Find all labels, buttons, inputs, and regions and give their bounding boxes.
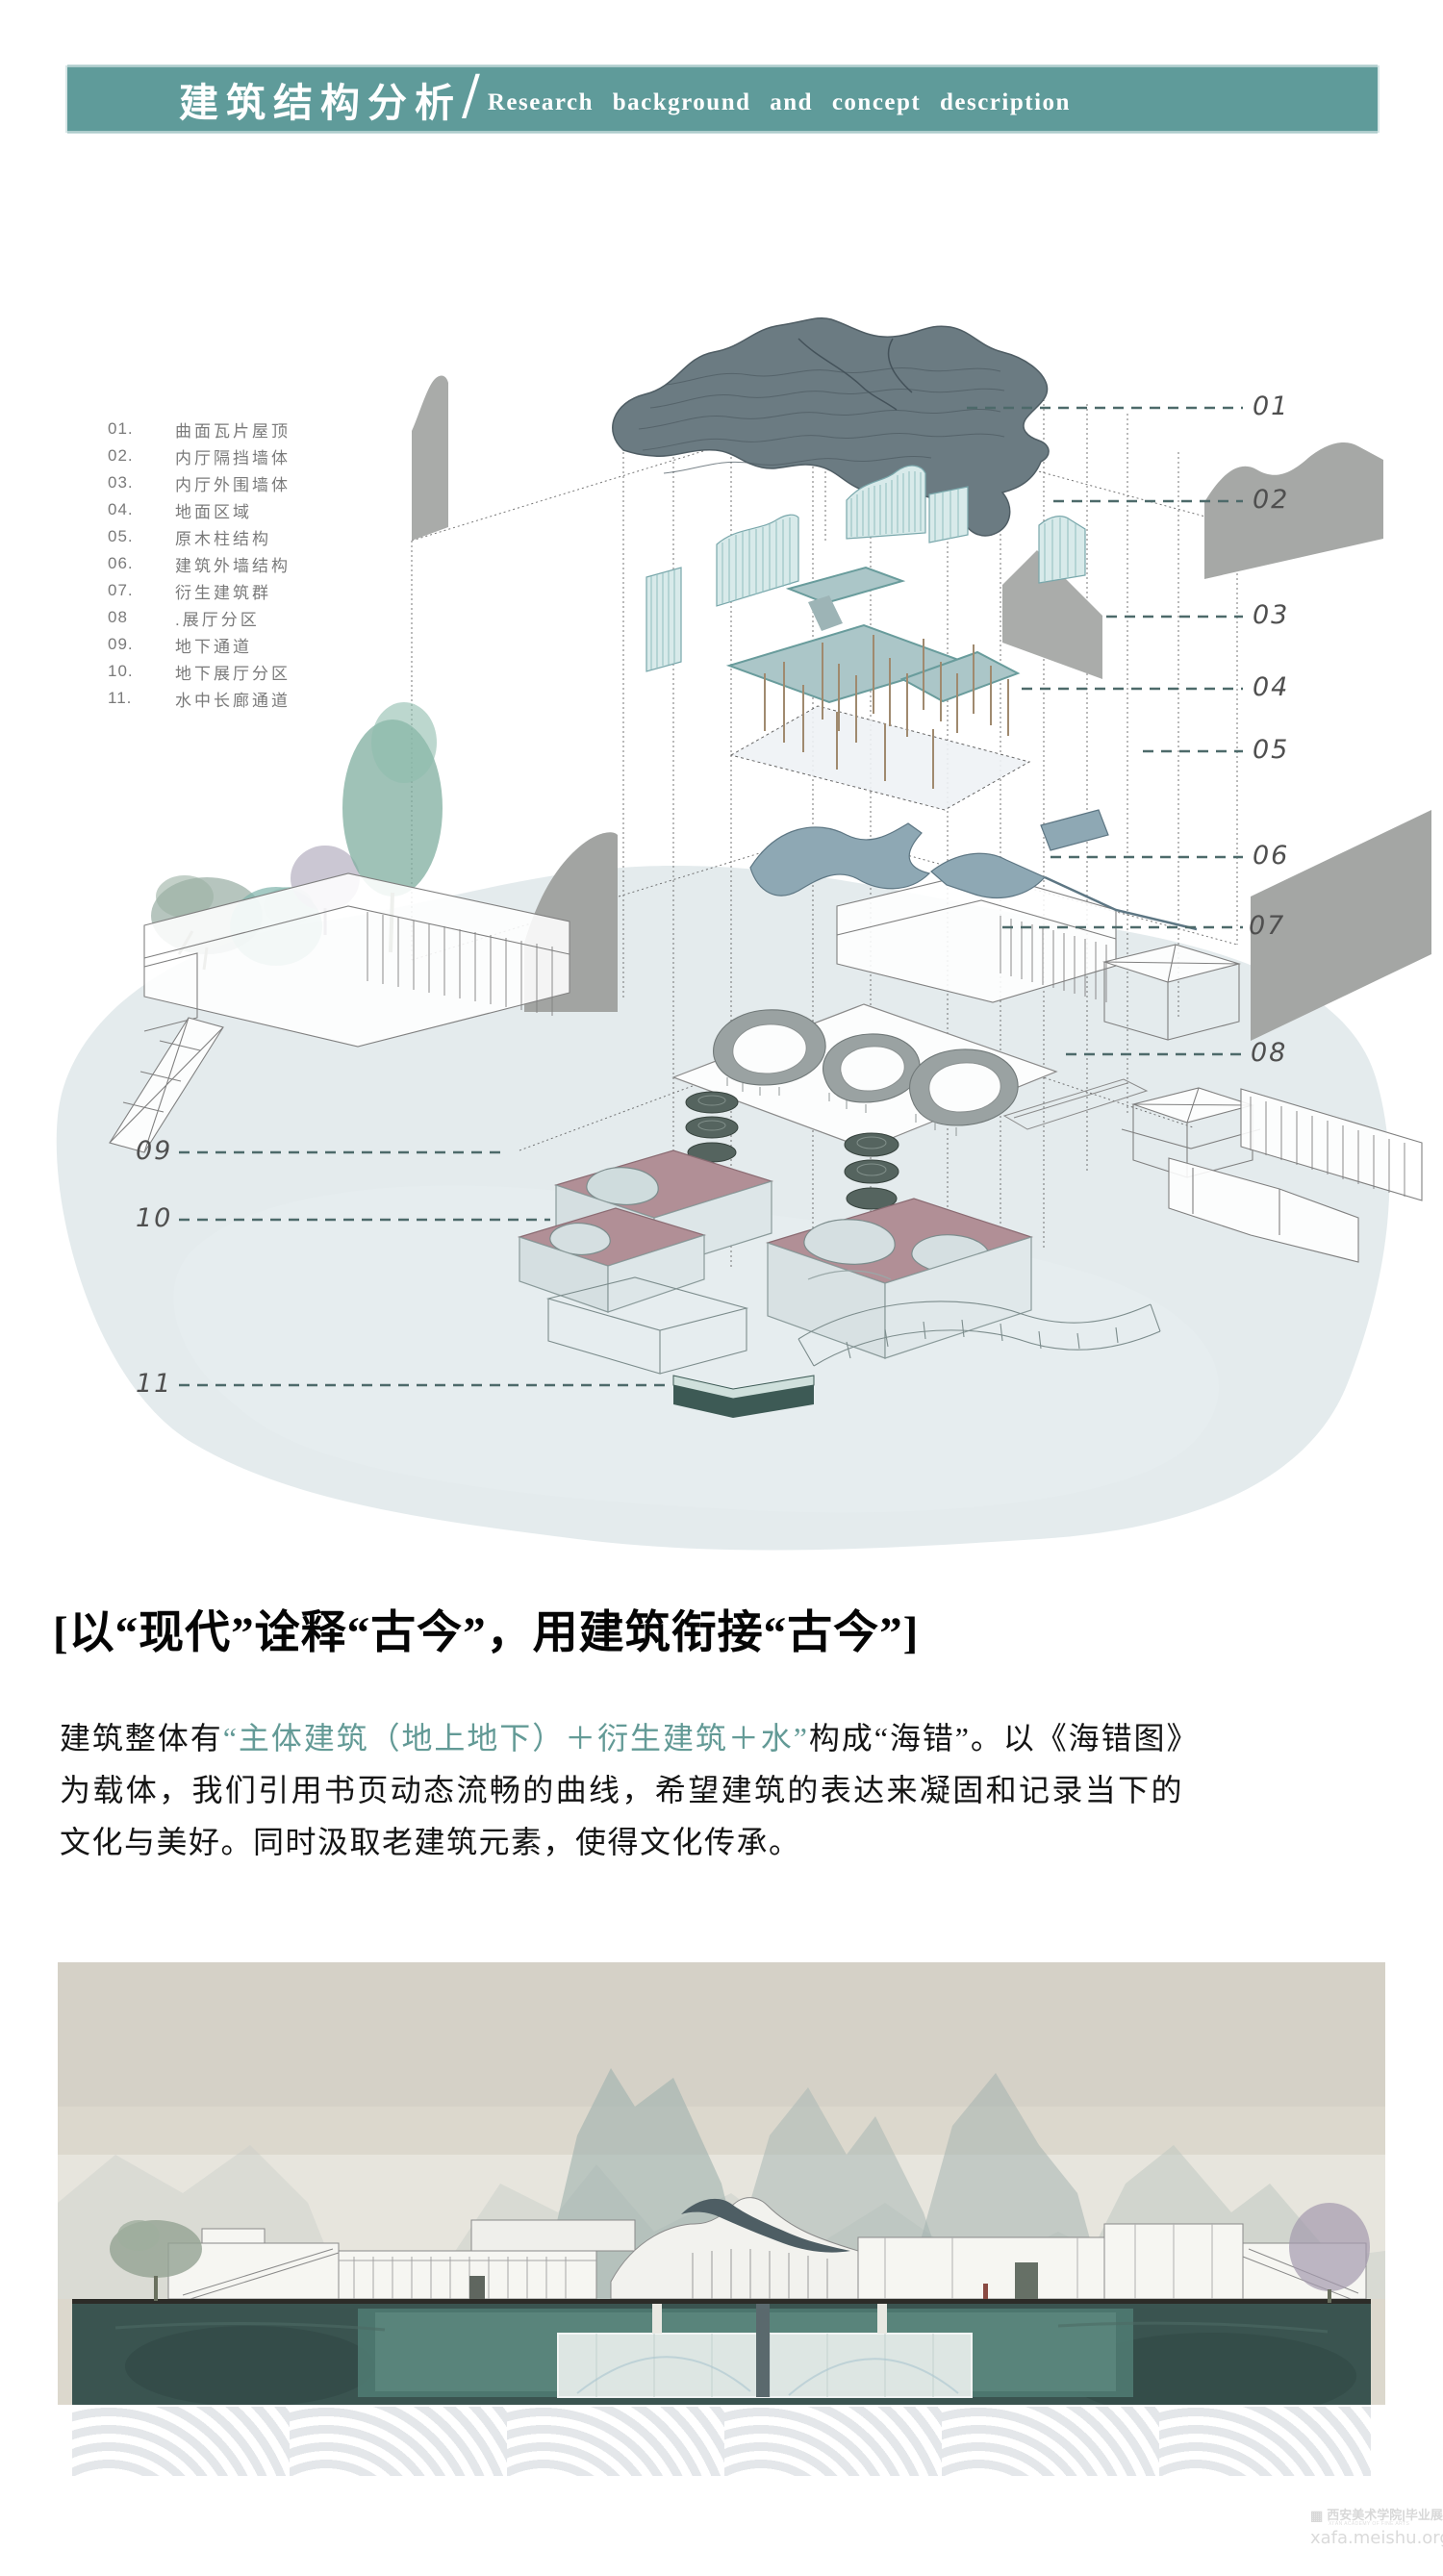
watermark: ▦西安美术学院|毕业展 XI'AN ACADEMY OF FINE ARTS x… <box>1310 2509 1443 2548</box>
callout-11: 11 <box>136 1369 172 1399</box>
callout-05: 05 <box>1253 735 1289 765</box>
callout-01: 01 <box>1253 391 1289 421</box>
curved-tile-roof <box>613 318 1049 536</box>
legend-item: 06.建筑外墙结构 <box>108 550 291 577</box>
layer-legend: 01.曲面瓦片屋顶 02.内厅隔挡墙体 03.内厅外围墙体 04.地面区域 05… <box>108 416 291 712</box>
legend-item: 04.地面区域 <box>108 496 291 523</box>
render-ground-line <box>72 2299 1371 2304</box>
callout-06: 06 <box>1253 841 1289 871</box>
callout-02: 02 <box>1253 485 1289 515</box>
concept-paragraph: 建筑整体有“主体建筑（地上地下）＋衍生建筑＋水”构成“海错”。以《海错图》为载体… <box>60 1712 1183 1868</box>
legend-item: 02.内厅隔挡墙体 <box>108 442 291 469</box>
legend-item: 11.水中长廊通道 <box>108 685 291 712</box>
concept-headline: [以“现代”诠释“古今”，用建筑衔接“古今”] <box>53 1595 1304 1661</box>
paragraph-prefix: 建筑整体有 <box>60 1721 223 1755</box>
legend-item: 10.地下展厅分区 <box>108 658 291 685</box>
person-figure <box>983 2284 988 2299</box>
paragraph-highlight: “主体建筑（地上地下）＋衍生建筑＋水” <box>223 1721 809 1755</box>
callout-09: 09 <box>136 1136 172 1166</box>
callout-07: 07 <box>1249 911 1285 941</box>
wave-pattern-band <box>72 2407 1371 2476</box>
legend-item: 05.原木柱结构 <box>108 523 291 550</box>
watermark-academy: 西安美术学院|毕业展 <box>1327 2509 1443 2522</box>
watermark-url: xafa.meishu.org.cn <box>1310 2529 1443 2548</box>
presentation-board: 建筑结构分析 / Research background and concept… <box>0 0 1443 2576</box>
legend-item: 09.地下通道 <box>108 631 291 658</box>
callout-10: 10 <box>136 1203 172 1233</box>
section-elevation-render <box>58 1962 1385 2405</box>
legend-item: 03.内厅外围墙体 <box>108 469 291 496</box>
callout-03: 03 <box>1253 600 1289 630</box>
legend-item: 08.展厅分区 <box>108 604 291 631</box>
legend-item: 01.曲面瓦片屋顶 <box>108 416 291 442</box>
watermark-academy-en: XI'AN ACADEMY OF FINE ARTS <box>1329 2522 1443 2528</box>
callout-04: 04 <box>1253 672 1289 702</box>
legend-item: 07.衍生建筑群 <box>108 577 291 604</box>
callout-08: 08 <box>1251 1038 1287 1068</box>
academy-logo-icon: ▦ <box>1310 2509 1323 2522</box>
